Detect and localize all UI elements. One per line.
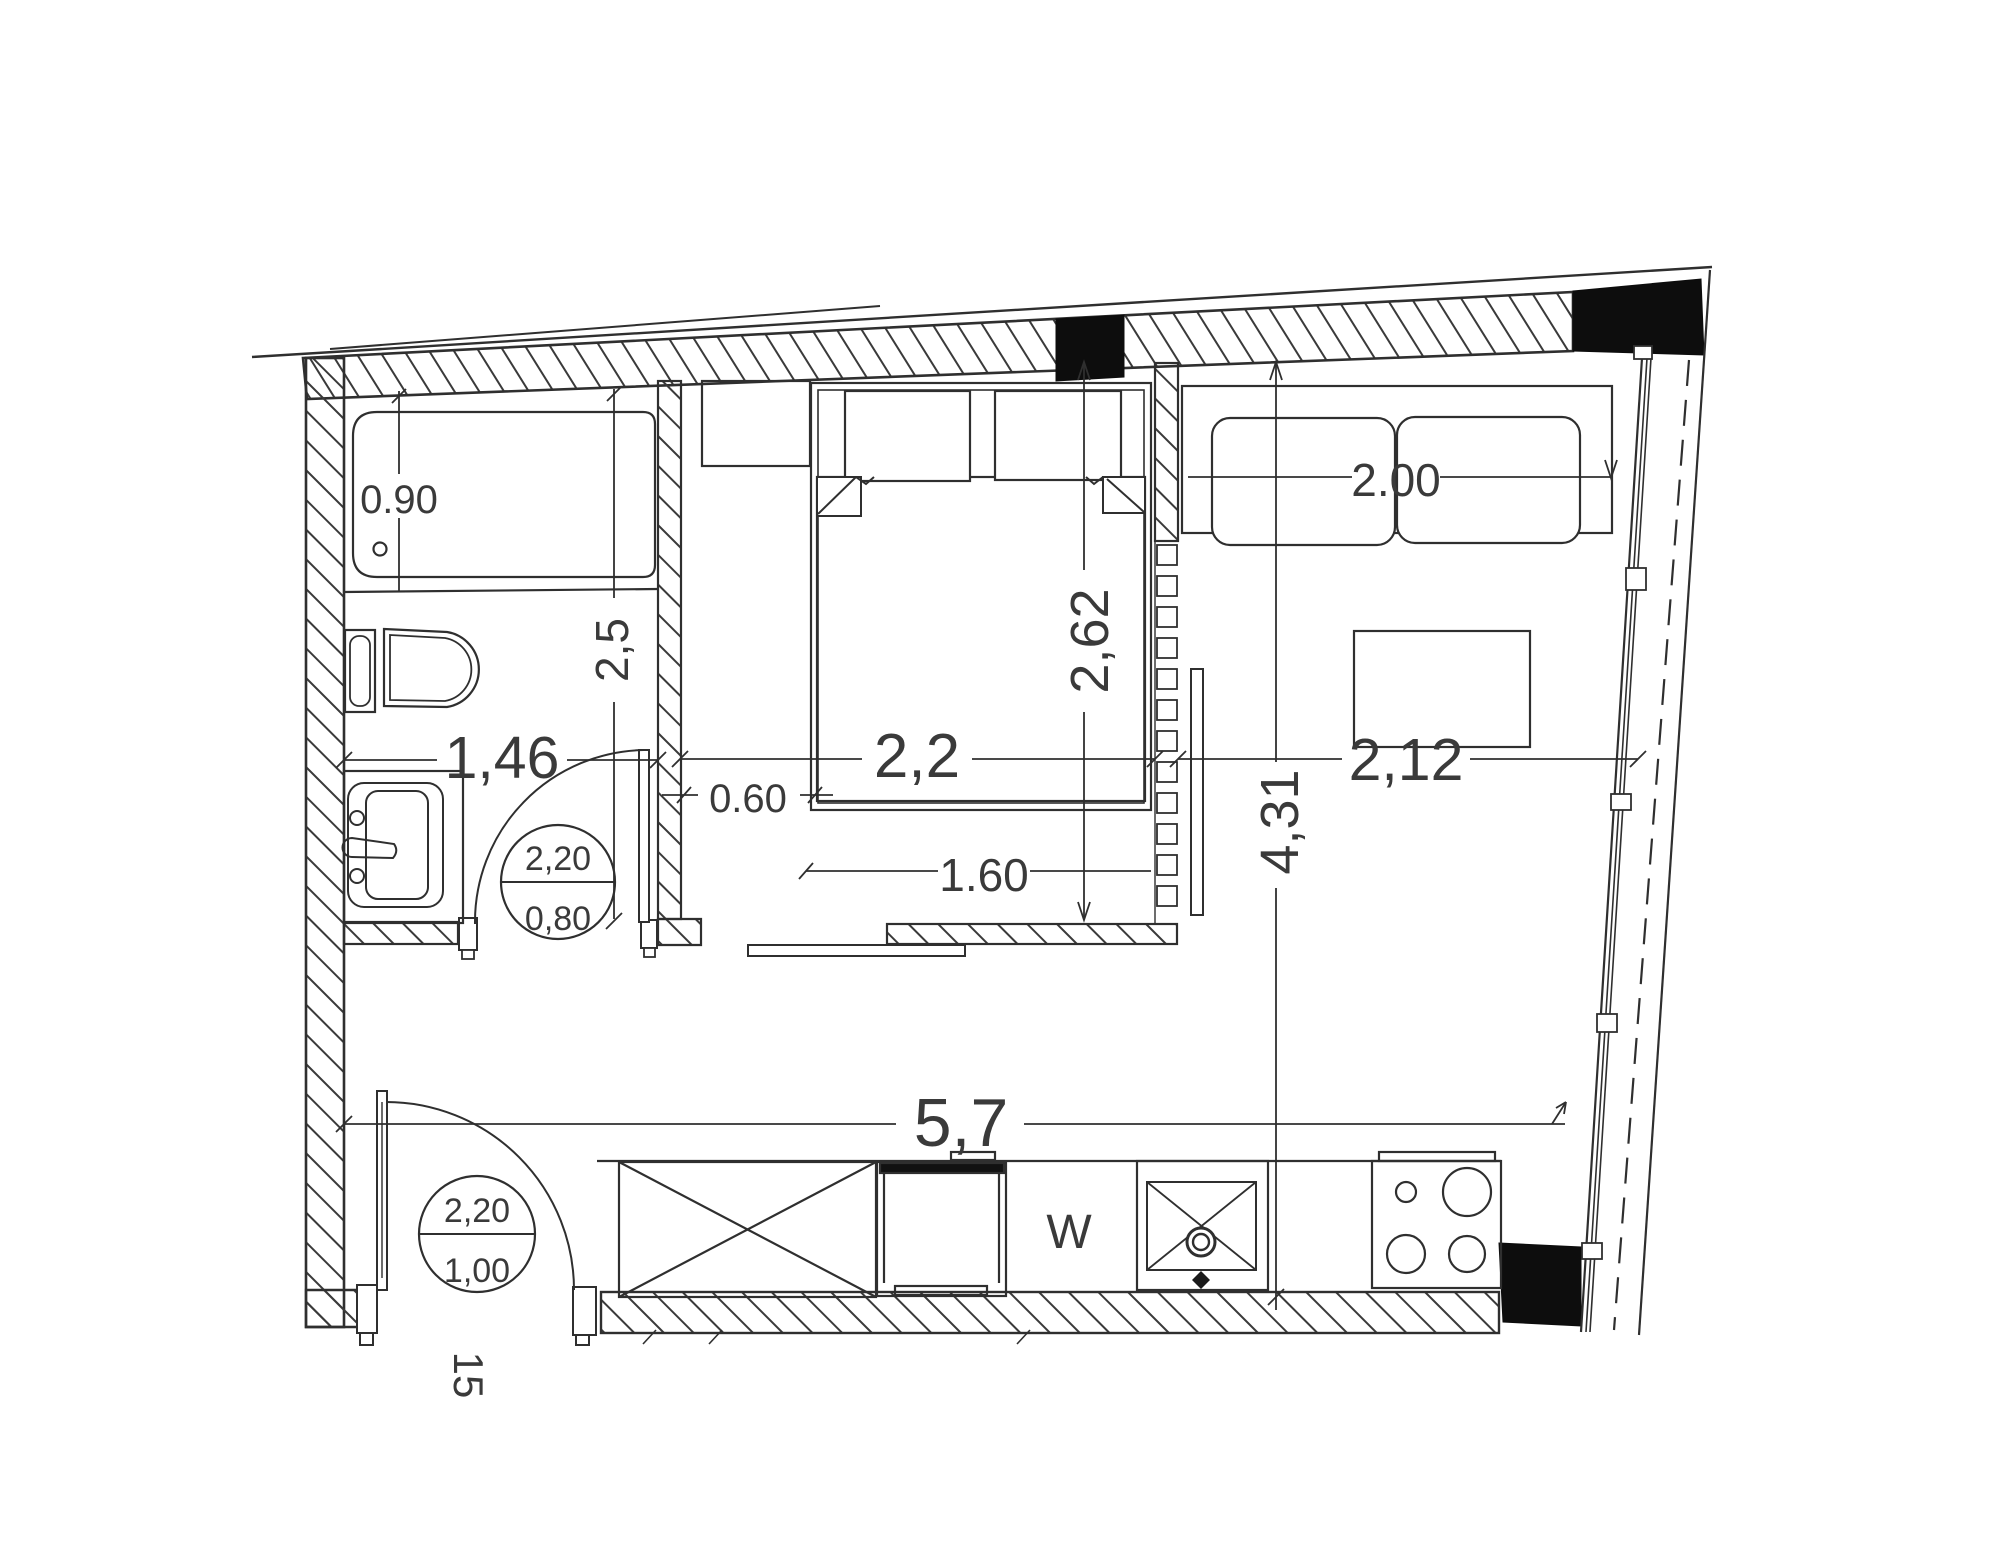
svg-text:1.60: 1.60 [939,849,1029,901]
svg-text:4,31: 4,31 [1250,769,1310,874]
svg-text:2.00: 2.00 [1351,454,1441,506]
svg-text:1,00: 1,00 [444,1252,510,1290]
svg-text:2,2: 2,2 [874,722,960,791]
svg-text:15: 15 [445,1352,492,1399]
svg-text:2,12: 2,12 [1349,727,1464,793]
svg-text:2,5: 2,5 [586,618,638,682]
svg-text:W: W [1046,1206,1092,1259]
svg-text:0.60: 0.60 [709,777,787,821]
svg-text:2,20: 2,20 [525,840,591,878]
svg-text:0.90: 0.90 [360,478,438,522]
svg-text:0,80: 0,80 [525,900,591,938]
svg-text:1,46: 1,46 [445,725,560,791]
svg-text:5,7: 5,7 [914,1085,1009,1161]
svg-text:2,62: 2,62 [1060,588,1120,693]
svg-text:2,20: 2,20 [444,1192,510,1230]
